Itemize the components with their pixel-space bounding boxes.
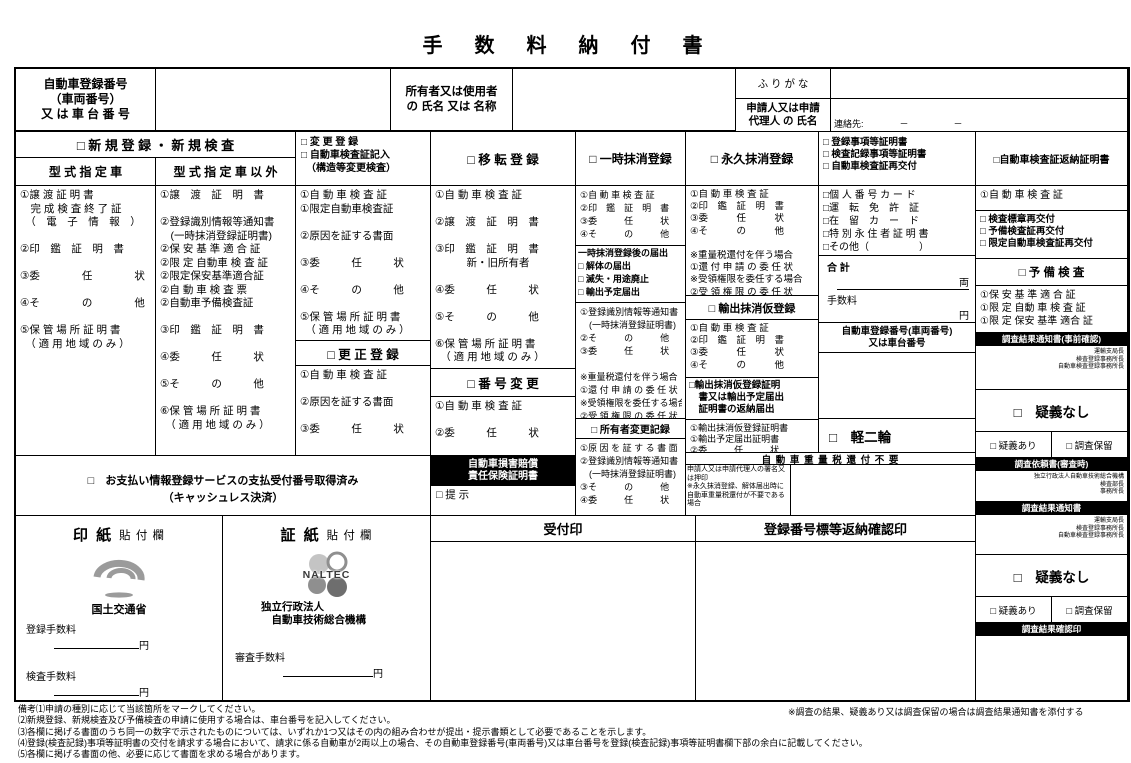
examination-fee-label: 審査手数料 [235, 649, 430, 664]
naltec-org-name: 独立行政法人 自動車技術総合機構 [261, 601, 430, 627]
return-certificate-line: ①自 動 車 検 査 証 [975, 185, 1128, 211]
form-line: ①限定自動車検査証 [300, 203, 427, 217]
form-line [300, 243, 427, 257]
reissue-checks[interactable]: □ 検査標章再交付□ 予備検査証再交付□ 限定自動車検査証再交付 [975, 210, 1128, 259]
form-line: ④委 任 状 [580, 494, 682, 507]
investigation-confirm-stamp-header: 調査結果確認印 [975, 622, 1128, 636]
form-line: ①自 動 車 検 査 証 [690, 189, 815, 201]
form-line: (一時抹消登録証明書) [580, 468, 682, 481]
form-line: ②原因を証する書面 [300, 396, 427, 410]
page-title: 手 数 料 納 付 書 [0, 30, 1131, 56]
section-number-change-header[interactable]: □ 番 号 変 更 [430, 368, 576, 397]
revenue-stamp-title-big: 印 紙 [73, 524, 113, 545]
reception-stamp-area: 受付印 [430, 515, 696, 701]
form-line: ④そ の 他 [690, 226, 815, 238]
footer-side-note: ※調査の結果、疑義あり又は調査保留の場合は調査結果通知書を添付する [788, 705, 1128, 718]
form-line: ②保 安 基 準 適 合 証 [160, 243, 292, 257]
form-line[interactable]: □その他（ ） [823, 241, 972, 254]
form-line: (一時抹消登録証明書) [580, 319, 682, 332]
form-line: ①限 定 自動 車 検 査 証 [980, 302, 1124, 315]
form-line [20, 311, 152, 325]
correction-registration-list: ①自 動 車 検 査 証②原因を証する書面③委 任 状 [295, 365, 431, 456]
export-provisional-list: ①自 動 車 検 査 証②印 鑑 証 明 書③委 任 状④そ の 他 [685, 319, 819, 378]
owner-name-label: 所有者又は使用者 の 氏名 又は 名称 [390, 68, 513, 131]
vehicle-number-field[interactable] [155, 68, 391, 131]
form-line [300, 270, 427, 284]
form-line: ①原 因 を 証 す る 書 面 [580, 442, 682, 455]
form-line: ①輸出抹消仮登録証明書 [690, 423, 815, 434]
form-line[interactable]: □個 人 番 号 カ ー ド [823, 189, 972, 202]
form-line[interactable]: □ 自動車検査証記入 [301, 149, 428, 162]
form-line: ②限 定 自動車 検 査 証 [160, 257, 292, 271]
reception-stamp-header: 受付印 [431, 516, 695, 542]
inspection-fee-field[interactable]: 円 [54, 683, 222, 701]
form-line: （ 適 用 地 域 の み ） [435, 351, 572, 365]
form-line[interactable]: □ 限定自動車検査証再交付 [980, 238, 1126, 250]
form-line: ③委 任 状 [580, 215, 682, 228]
cashless-subtitle: （キャッシュレス決済） [16, 488, 430, 506]
form-line: ②委 任 状 [435, 427, 572, 441]
form-line: ④そ の 他 [300, 284, 427, 298]
form-line: ③委 任 状 [300, 257, 427, 271]
form-line: ③委 任 状 [20, 270, 152, 284]
form-line [435, 203, 572, 217]
type-designated-list: ①譲 渡 証 明 書 完 成 検 査 終 了 証 （ 電 子 情 報 ）②印 鑑… [15, 185, 156, 456]
form-line: ①譲 渡 証 明 書 [160, 189, 292, 203]
mlit-org-name: 国土交通省 [16, 601, 222, 617]
total-unit: 両 [959, 278, 969, 289]
form-line: ②自動車予備検査証 [160, 297, 292, 311]
form-line[interactable]: □ 滅失・用途廃止 [578, 273, 683, 286]
form-line: ②登録識別情報等通知書 [580, 455, 682, 468]
registration-fee-label: 登録手数料 [26, 621, 222, 636]
form-line [160, 311, 292, 325]
examination-fee-unit: 円 [373, 669, 383, 680]
total-count-field[interactable]: 両 [837, 274, 969, 290]
form-line: ⑶各欄に掲げる書面のうち同一の数字で示されたものについては、いずれか1つ又はその… [18, 727, 1118, 738]
form-line: ②登録識別情報等通知書 [160, 216, 292, 230]
number-change-list: ①自 動 車 検 査 証②委 任 状 [430, 396, 576, 456]
form-line [690, 238, 815, 250]
form-line [20, 230, 152, 244]
form-line: （ 適 用 地 域 の み ） [160, 419, 292, 433]
form-line: ②原因を証する書面 [300, 230, 427, 244]
revenue-stamp-title-small: 貼 付 欄 [119, 527, 165, 543]
form-line: 新・旧所有者 [435, 257, 572, 271]
owner-name-field[interactable] [512, 68, 736, 131]
form-line: ①還 付 申 請 の 委 任 状 [690, 262, 815, 274]
form-line: ①譲 渡 証 明 書 [20, 189, 152, 203]
form-line: （ 電 子 情 報 ） [20, 216, 152, 230]
form-line: ⑤そ の 他 [160, 378, 292, 392]
certificate-stamp-area: 証 紙 貼 付 欄 NALTEC 独立行政法人 自動車技術総合機構 審査手数料 … [222, 515, 431, 701]
certificate-stamp-title-big: 証 紙 [280, 524, 320, 545]
form-line: ①登録識別情報等通知書 [580, 306, 682, 319]
certificates-vehicle-no-field[interactable] [818, 352, 976, 419]
identity-document-list: □個 人 番 号 カ ー ド□運 転 免 許 証□在 留 カ ー ド□特 別 永… [818, 185, 976, 256]
form-line: ③そ の 他 [580, 481, 682, 494]
form-line [300, 410, 427, 424]
form-line: ⑸各欄に掲げる書面の他、必要に応じて書面を求める場合があります。 [18, 749, 1118, 760]
form-line: ①還 付 申 請 の 委 任 状 [580, 384, 682, 397]
form-line: ④委 任 状 [435, 284, 572, 298]
liability-present-checkbox[interactable]: □ 提 示 [430, 485, 576, 516]
form-line: ※重量税還付を伴う場合 [580, 371, 682, 384]
permanent-deletion-list1: ①自 動 車 検 査 証②印 鑑 証 明 書③委 任 状④そ の 他※重量税還付… [685, 185, 819, 296]
export-return-header[interactable]: □輸出抹消仮登録証明 書又は輸出予定届出 証明書の返納届出 [685, 377, 819, 420]
form-line: ①自 動 車 検 査 証 [980, 189, 1124, 202]
no-doubt-checkbox-2[interactable]: □ 疑義なし [975, 554, 1128, 597]
investigation-notice-header: 調査結果通知書 [975, 501, 1128, 515]
form-line [435, 297, 572, 311]
form-line: ①自 動 車 検 査 証 [435, 400, 572, 414]
form-line: ②限定保安基準適合証 [160, 270, 292, 284]
investigation-notice-pre-addressees: 運輸支局長 検査登録事務所長 自動車検査登録事務所長 [975, 345, 1128, 390]
form-line: (一時抹消登録証明書) [160, 230, 292, 244]
form-line [160, 392, 292, 406]
form-line [435, 324, 572, 338]
naltec-logo-icon: NALTEC [223, 549, 430, 601]
form-line[interactable]: □ 自動車検査証再交付 [823, 161, 973, 173]
total-label: 合 計 [827, 259, 969, 274]
form-line: ⑷登録(検査記録)事項等証明書の交付を請求する場合において、請求に係る自動車が2… [18, 738, 1118, 749]
plate-return-stamp-area: 登録番号標等返納確認印 [695, 515, 976, 701]
form-line: ③委 任 状 [690, 347, 815, 359]
mlit-logo-icon [16, 551, 222, 601]
investigation-request-header: 調査依頼書(審査時) [975, 457, 1128, 471]
after-deletion-notification-box: 一時抹消登録後の届出 □ 解体の届出□ 滅失・用途廃止□ 輸出予定届出 [575, 245, 686, 303]
section-preliminary-inspection-header[interactable]: □ 予 備 検 査 [975, 258, 1128, 286]
naltec-logo-text: NALTEC [223, 569, 430, 581]
examination-fee-field[interactable]: 円 [283, 664, 430, 682]
investigation-confirm-stamp-field [975, 635, 1128, 701]
form-line: 書又は輸出予定届出 [689, 392, 817, 404]
form-line [20, 284, 152, 298]
form-line[interactable]: □ 検査標章再交付 [980, 214, 1126, 226]
form-line: ①輸出予定届出証明書 [690, 434, 815, 445]
form-line [435, 414, 572, 428]
form-line [160, 338, 292, 352]
doubt-checkbox-1[interactable]: □ 疑義あり [975, 431, 1052, 458]
form-line: ①自 動 車 検 査 証 [435, 189, 572, 203]
form-line: ①自 動 車 検 査 証 [690, 323, 815, 335]
temporary-deletion-list1: ①自 動 車 検 査 証②印 鑑 証 明 書③委 任 状④そ の 他 [575, 185, 686, 246]
form-line: ⑤保 管 場 所 証 明 書 [300, 311, 427, 325]
form-line[interactable]: □在 留 カ ー ド [823, 215, 972, 228]
after-deletion-title: 一時抹消登録後の届出 [578, 247, 683, 260]
inspection-fee-label: 検査手数料 [26, 668, 222, 683]
fee-amount-field[interactable]: 円 [837, 307, 969, 323]
form-line[interactable]: □ 輸出予定届出 [578, 286, 683, 299]
form-line: ④そ の 他 [20, 297, 152, 311]
form-line: ⑥保 管 場 所 証 明 書 [160, 405, 292, 419]
kei-niirin-checkbox[interactable]: □ 軽二輪 [818, 418, 976, 453]
certificate-stamp-title-small: 貼 付 欄 [327, 527, 373, 543]
form-line: ④そ の 他 [580, 228, 682, 241]
form-line: ②印 鑑 証 明 書 [20, 243, 152, 257]
certificates-vehicle-no-header: 自動車登録番号(車両番号) 又は車台番号 [818, 322, 976, 353]
owner-change-record-list: ①原 因 を 証 す る 書 面②登録識別情報等通知書 (一時抹消登録証明書)③… [575, 438, 686, 516]
investigation-notice-pre-header: 調査結果通知書(事前確認) [975, 332, 1128, 346]
doubt-checkbox-2[interactable]: □ 疑義あり [975, 596, 1052, 623]
form-line: （ 適 用 地 域 の み ） [300, 324, 427, 338]
section-temporary-deletion-header[interactable]: □ 一時抹消登録 [575, 131, 686, 186]
form-line[interactable]: □ 検査記録事項等証明書 [823, 149, 973, 161]
form-line: ③印 鑑 証 明 書 [435, 243, 572, 257]
hold-checkbox-1[interactable]: □ 調査保留 [1051, 431, 1128, 458]
form-line[interactable]: □輸出抹消仮登録証明 [689, 380, 817, 392]
type-other-list: ①譲 渡 証 明 書②登録識別情報等通知書 (一時抹消登録証明書)②保 安 基 … [155, 185, 296, 456]
inspection-fee-unit: 円 [139, 688, 149, 699]
temporary-deletion-list2: ①登録識別情報等通知書 (一時抹消登録証明書)②そ の 他③委 任 状※重量税還… [575, 302, 686, 419]
form-line [435, 270, 572, 284]
fee-unit: 円 [959, 311, 969, 322]
form-line: ④そ の 他 [690, 360, 815, 372]
form-line: ②譲 渡 証 明 書 [435, 216, 572, 230]
form-line [160, 203, 292, 217]
form-line [20, 257, 152, 271]
applicant-name-label: 申請人又は申請 代理人 の 氏名 [735, 98, 831, 132]
export-return-list: ①輸出抹消仮登録証明書①輸出予定届出証明書②委 任 状 [685, 419, 819, 453]
section-transfer-registration-header[interactable]: □ 移 転 登 録 [430, 131, 576, 186]
form-line: ③委 任 状 [580, 345, 682, 358]
form-line[interactable]: □ 変 更 登 録 [301, 136, 428, 149]
section-return-certificate-header[interactable]: □自動車検査証返納証明書 [975, 131, 1128, 186]
section-export-provisional-header[interactable]: □ 輸出抹消仮登録 [685, 295, 819, 320]
form-line [300, 297, 427, 311]
form-line [300, 216, 427, 230]
form-line: ②自 動 車 検 査 票 [160, 284, 292, 298]
form-line: ②印 鑑 証 明 書 [690, 335, 815, 347]
section-owner-change-record-header[interactable]: □ 所有者変更記録 [575, 418, 686, 439]
form-line: ①保 安 基 準 適 合 証 [980, 289, 1124, 302]
form-line: （構造等変更検査） [301, 162, 428, 175]
form-line: ①自 動 車 検 査 証 [300, 189, 427, 203]
form-line[interactable]: □運 転 免 許 証 [823, 202, 972, 215]
form-line: ③委 任 状 [300, 423, 427, 437]
revenue-stamp-title: 印 紙 貼 付 欄 [16, 524, 222, 545]
form-line: ②そ の 他 [580, 332, 682, 345]
form-line: ※受領権限を委任する場合 [690, 274, 815, 286]
fee-label: 手数料 [827, 292, 969, 307]
form-line: ③印 鑑 証 明 書 [160, 324, 292, 338]
liability-insurance-header: 自動車損害賠償 責任保険証明書 [430, 455, 576, 486]
after-deletion-checks: □ 解体の届出□ 滅失・用途廃止□ 輸出予定届出 [578, 260, 683, 299]
form-line: ③委 任 状 [690, 213, 815, 225]
investigation-request-addressees: 独立行政法人自動車技術総合機構 検査部長 事務所長 [975, 470, 1128, 502]
certificates-total-box: 合 計 両 手数料 円 [818, 255, 976, 323]
section-new-registration-header[interactable]: □ 新 規 登 録 ・ 新 規 検 査 [15, 131, 296, 158]
form-line: 証明書の返納届出 [689, 404, 817, 416]
certificate-stamp-title: 証 紙 貼 付 欄 [223, 524, 430, 545]
registration-fee-field[interactable]: 円 [54, 636, 222, 654]
form-line: ①限 定 保安 基準 適合 証 [980, 315, 1124, 328]
section-correction-registration-header[interactable]: □ 更 正 登 録 [295, 340, 431, 366]
registration-fee-unit: 円 [139, 641, 149, 652]
form-line[interactable]: □特 別 永 住 者 証 明 書 [823, 228, 972, 241]
vehicle-number-label: 自動車登録番号 （車両番号） 又 は 車 台 番 号 [15, 68, 156, 131]
col-type-designated-header: 型 式 指 定 車 [15, 157, 156, 186]
form-line [435, 230, 572, 244]
fee-payment-form: 手 数 料 納 付 書 自動車登録番号 （車両番号） 又 は 車 台 番 号 所… [0, 0, 1131, 763]
applicant-name-field[interactable]: 連絡先: － － [830, 98, 1128, 132]
form-line: ⑥保 管 場 所 証 明 書 [435, 338, 572, 352]
cashless-box: □ お支払い情報登録サービスの支払受付番号取得済み （キャッシュレス決済） [15, 455, 431, 516]
form-line [580, 358, 682, 371]
section-change-registration-header[interactable]: □ 変 更 登 録□ 自動車検査証記入 （構造等変更検査） [295, 131, 431, 186]
form-line: ②印 鑑 証 明 書 [690, 201, 815, 213]
section-certificates-header[interactable]: □ 登録事項等証明書□ 検査記録事項等証明書□ 自動車検査証再交付 [818, 131, 976, 186]
form-line: ※受領権限を委任する場合 [580, 397, 682, 410]
form-line[interactable]: □ 解体の届出 [578, 260, 683, 273]
form-line[interactable]: □ 登録事項等証明書 [823, 137, 973, 149]
form-line: ①自 動 車 検 査 証 [300, 369, 427, 383]
transfer-registration-list: ①自 動 車 検 査 証②譲 渡 証 明 書③印 鑑 証 明 書 新・旧所有者④… [430, 185, 576, 369]
preliminary-inspection-list: ①保 安 基 準 適 合 証①限 定 自動 車 検 査 証①限 定 保安 基準 … [975, 285, 1128, 333]
col-type-other-header: 型 式 指 定 車 以 外 [155, 157, 296, 186]
investigation-notice-addressees: 運輸支局長 検査登録事務所長 自動車検査登録事務所長 [975, 514, 1128, 555]
cashless-checkbox[interactable]: □ お支払い情報登録サービスの支払受付番号取得済み [16, 456, 430, 488]
form-line[interactable]: □ 予備検査証再交付 [980, 226, 1126, 238]
no-doubt-checkbox-1[interactable]: □ 疑義なし [975, 389, 1128, 432]
form-line: ⑤そ の 他 [435, 311, 572, 325]
weight-tax-note: 申請人又は申請代理人の署名又は押印 ※永久抹消登録、解体届出時に自動車重量税還付… [685, 464, 791, 516]
weight-tax-signature-field[interactable] [790, 464, 976, 516]
revenue-stamp-area: 印 紙 貼 付 欄 国土交通省 登録手数料 円 検査手数料 円 [15, 515, 223, 701]
contact-line[interactable]: 連絡先: － － [834, 117, 963, 130]
hold-checkbox-2[interactable]: □ 調査保留 [1051, 596, 1128, 623]
furigana-field[interactable] [830, 68, 1128, 99]
plate-return-stamp-header: 登録番号標等返納確認印 [696, 516, 975, 542]
form-line: 完 成 検 査 終 了 証 [20, 203, 152, 217]
form-line: （ 適 用 地 域 の み ） [20, 338, 152, 352]
section-permanent-deletion-header[interactable]: □ 永久抹消登録 [685, 131, 819, 186]
form-line: ①自 動 車 検 査 証 [580, 189, 682, 202]
form-line: ※重量税還付を伴う場合 [690, 250, 815, 262]
form-line [300, 383, 427, 397]
form-line: ④委 任 状 [160, 351, 292, 365]
furigana-label: ふ り が な [735, 68, 831, 99]
form-line [160, 365, 292, 379]
form-line: ⑤保 管 場 所 証 明 書 [20, 324, 152, 338]
change-registration-list: ①自 動 車 検 査 証①限定自動車検査証②原因を証する書面③委 任 状④そ の… [295, 185, 431, 341]
form-line: ②印 鑑 証 明 書 [580, 202, 682, 215]
